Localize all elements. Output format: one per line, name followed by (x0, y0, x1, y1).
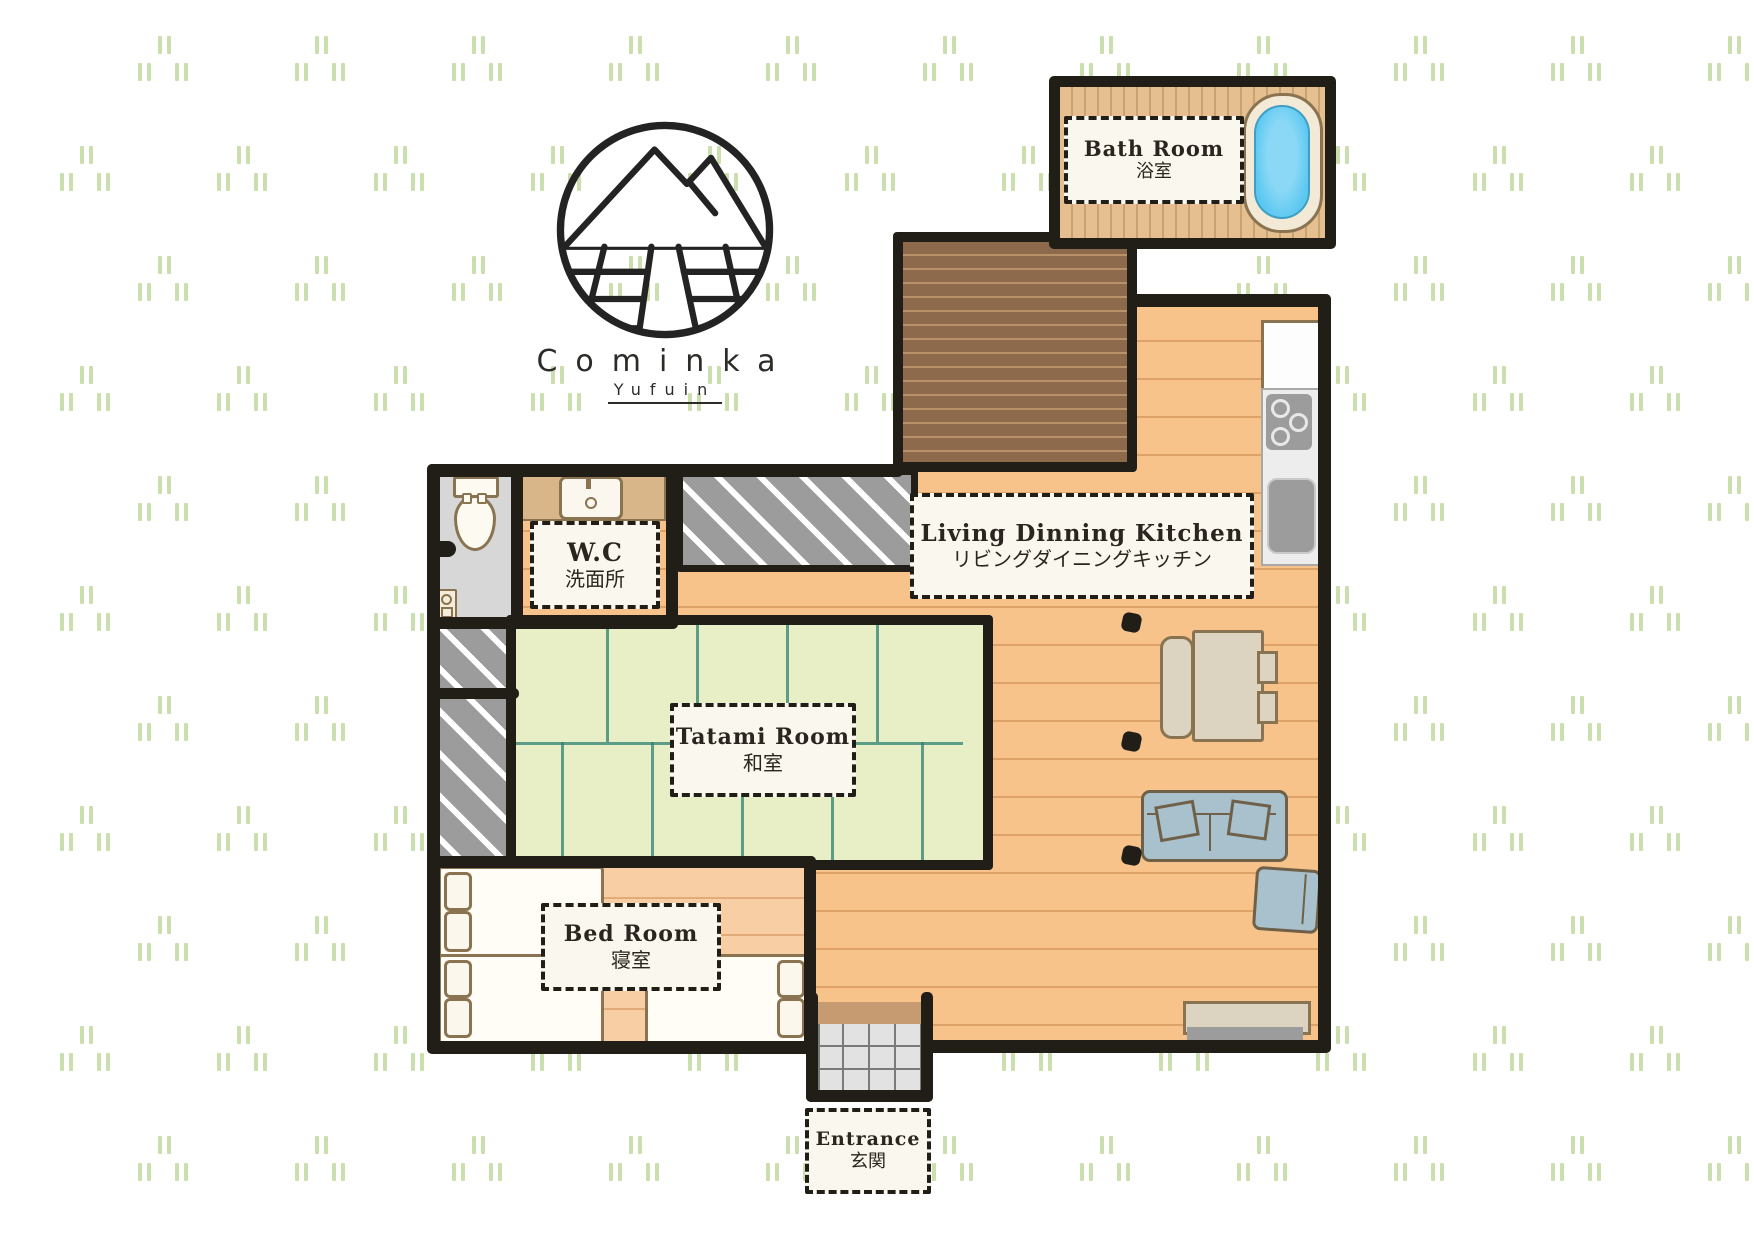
grass-tuft (295, 256, 351, 302)
grass-mark (332, 723, 346, 741)
tatami-mat-line (561, 742, 564, 860)
grass-mark (217, 613, 231, 631)
grass-mark (1650, 586, 1664, 604)
grass-mark (1510, 1053, 1524, 1071)
grass-tuft (766, 36, 822, 82)
grass-mark (943, 36, 957, 54)
sofa-cushion (1227, 799, 1272, 840)
grass-tuft (609, 1136, 665, 1182)
grass-mark (786, 256, 800, 274)
wall-wc-bottom (427, 617, 678, 629)
wc-label-ja: 洗面所 (565, 569, 625, 590)
grass-tuft (138, 256, 194, 302)
grass-tuft (217, 366, 273, 412)
grass-tuft (1473, 806, 1529, 852)
grass-tuft (1708, 1136, 1754, 1182)
grass-mark (158, 916, 172, 934)
grass-mark (217, 1053, 231, 1071)
grass-mark (295, 943, 309, 961)
kitchen-sink-icon (1267, 478, 1316, 554)
grass-mark (1745, 63, 1754, 81)
grass-mark (960, 1163, 974, 1181)
closet-divider-wall (429, 688, 519, 699)
grass-mark (332, 503, 346, 521)
grass-mark (1353, 173, 1367, 191)
toilet-icon (451, 476, 497, 550)
grass-mark (1588, 943, 1602, 961)
grass-mark (60, 173, 74, 191)
pillow-icon (777, 998, 805, 1038)
grass-mark (865, 146, 879, 164)
grass-mark (1353, 613, 1367, 631)
grass-mark (175, 283, 189, 301)
grass-mark (1002, 173, 1016, 191)
grass-mark (237, 146, 251, 164)
grass-mark (1510, 393, 1524, 411)
ldk-label: Living Dinning Kitchen リビングダイニングキッチン (910, 493, 1254, 599)
grass-mark (1667, 1053, 1681, 1071)
grass-mark (1394, 503, 1408, 521)
grass-mark (1728, 476, 1742, 494)
grass-mark (1100, 36, 1114, 54)
grass-mark (1100, 1136, 1114, 1154)
grass-mark (1510, 613, 1524, 631)
grass-tuft (1708, 256, 1754, 302)
grass-mark (1745, 723, 1754, 741)
grass-mark (1257, 36, 1271, 54)
grass-tuft (1630, 586, 1686, 632)
grass-tuft (217, 586, 273, 632)
grass-mark (865, 366, 879, 384)
burner-icon (1271, 427, 1290, 446)
entrance-step (818, 1002, 921, 1024)
grass-mark (1316, 1053, 1330, 1071)
grass-mark (1414, 696, 1428, 714)
grass-tuft (1551, 36, 1607, 82)
grass-tuft (60, 806, 116, 852)
bathroom-label-en: Bath Room (1084, 138, 1224, 160)
grass-mark (1353, 393, 1367, 411)
grass-mark (254, 173, 268, 191)
grass-mark (1473, 833, 1487, 851)
sink-icon (559, 476, 623, 520)
bathroom-label: Bath Room 浴室 (1064, 116, 1244, 204)
grass-tuft (1630, 146, 1686, 192)
toilet-door-stub (433, 541, 456, 557)
grass-tuft (295, 916, 351, 962)
wall-bottom-right (921, 1040, 1331, 1053)
grass-mark (138, 63, 152, 81)
grass-mark (138, 503, 152, 521)
grass-mark (472, 256, 486, 274)
grass-mark (1708, 503, 1722, 521)
grass-mark (1117, 1163, 1131, 1181)
grass-tuft (374, 366, 430, 412)
grass-mark (472, 36, 486, 54)
grass-mark (1022, 146, 1036, 164)
dining-table (1192, 630, 1264, 742)
grass-mark (489, 63, 503, 81)
wall-top-right (1127, 294, 1331, 307)
grass-mark (394, 146, 408, 164)
grass-tuft (1394, 476, 1450, 522)
bedroom-label-ja: 寝室 (611, 950, 651, 971)
entrance-tiles (818, 1024, 921, 1090)
grass-tuft (452, 1136, 508, 1182)
logo-subtitle: Yufuin (520, 380, 810, 399)
grass-tuft (923, 1136, 979, 1182)
wall-vestibule-right (921, 992, 933, 1102)
grass-mark (1630, 173, 1644, 191)
grass-mark (1551, 63, 1565, 81)
grass-tuft (452, 36, 508, 82)
grass-mark (295, 503, 309, 521)
grass-mark (158, 476, 172, 494)
grass-mark (1473, 173, 1487, 191)
grass-mark (217, 833, 231, 851)
grass-mark (1510, 833, 1524, 851)
grass-mark (845, 173, 859, 191)
grass-mark (217, 173, 231, 191)
grass-mark (374, 1053, 388, 1071)
grass-mark (80, 146, 94, 164)
logo-name: Cominka (536, 344, 793, 379)
grass-mark (766, 63, 780, 81)
grass-mark (411, 833, 425, 851)
grass-mark (1650, 366, 1664, 384)
grass-mark (609, 1163, 623, 1181)
entrance-label-ja: 玄関 (850, 1153, 886, 1172)
grass-mark (175, 723, 189, 741)
pillow-icon (777, 960, 805, 998)
grass-tuft (1237, 1136, 1293, 1182)
grass-mark (1551, 723, 1565, 741)
grass-tuft (1630, 806, 1686, 852)
grass-mark (646, 1163, 660, 1181)
grass-mark (1571, 696, 1585, 714)
grass-mark (1414, 256, 1428, 274)
grass-mark (786, 36, 800, 54)
grass-tuft (1473, 586, 1529, 632)
grass-mark (1414, 36, 1428, 54)
grass-mark (1630, 833, 1644, 851)
grass-mark (1588, 63, 1602, 81)
grass-tuft (1551, 916, 1607, 962)
grass-tuft (138, 1136, 194, 1182)
grass-mark (332, 943, 346, 961)
grass-mark (332, 1163, 346, 1181)
grass-mark (1728, 256, 1742, 274)
grass-mark (1039, 1053, 1053, 1071)
grass-mark (80, 806, 94, 824)
tv-icon (1187, 1027, 1303, 1040)
grass-mark (1493, 586, 1507, 604)
grass-mark (80, 1026, 94, 1044)
grass-tuft (374, 1026, 430, 1072)
tatami-label: Tatami Room 和室 (670, 703, 856, 797)
grass-mark (1002, 1053, 1016, 1071)
grass-mark (254, 393, 268, 411)
grass-mark (1431, 283, 1445, 301)
grass-mark (394, 366, 408, 384)
grass-mark (452, 63, 466, 81)
grass-mark (1394, 63, 1408, 81)
grass-mark (960, 63, 974, 81)
grass-mark (158, 256, 172, 274)
grass-mark (1571, 256, 1585, 274)
grass-tuft (374, 806, 430, 852)
grass-mark (646, 63, 660, 81)
grass-mark (1394, 1163, 1408, 1181)
grass-mark (97, 173, 111, 191)
grass-tuft (374, 146, 430, 192)
grass-tuft (60, 586, 116, 632)
grass-tuft (1473, 146, 1529, 192)
wood-deck (893, 232, 1137, 472)
grass-mark (1431, 943, 1445, 961)
grass-mark (1667, 393, 1681, 411)
grass-mark (1394, 943, 1408, 961)
grass-mark (1414, 1136, 1428, 1154)
toilet-bowl (454, 495, 496, 551)
grass-mark (1745, 283, 1754, 301)
grass-mark (1571, 1136, 1585, 1154)
hatched-zone-top (676, 468, 918, 572)
grass-mark (1745, 503, 1754, 521)
pillow-icon (444, 998, 472, 1038)
grass-mark (374, 173, 388, 191)
grass-mark (175, 63, 189, 81)
dining-chair (1257, 691, 1278, 724)
grass-mark (175, 943, 189, 961)
grass-mark (175, 1163, 189, 1181)
grass-mark (394, 1026, 408, 1044)
sofa-seat-divider (1209, 813, 1211, 851)
grass-mark (1274, 1163, 1288, 1181)
grass-tuft (1394, 256, 1450, 302)
grass-mark (629, 36, 643, 54)
grass-mark (1510, 173, 1524, 191)
grass-mark (1493, 366, 1507, 384)
grass-mark (217, 393, 231, 411)
grass-mark (60, 393, 74, 411)
grass-tuft (1630, 1026, 1686, 1072)
wall-wc-right (666, 470, 678, 629)
grass-mark (138, 723, 152, 741)
grass-tuft (1630, 366, 1686, 412)
grass-mark (1336, 586, 1350, 604)
floor-plan-canvas: Cominka Yufuin Bath Room 浴室 W.C 洗面所 (0, 0, 1754, 1241)
grass-mark (158, 1136, 172, 1154)
grass-mark (943, 1136, 957, 1154)
grass-mark (1473, 1053, 1487, 1071)
grass-mark (237, 1026, 251, 1044)
refrigerator-icon (1261, 320, 1324, 392)
logo-subtitle-text: Yufuin (608, 380, 722, 404)
grass-mark (1745, 943, 1754, 961)
grass-tuft (1708, 36, 1754, 82)
grass-mark (1196, 1053, 1210, 1071)
grass-mark (1708, 63, 1722, 81)
grass-mark (1257, 1136, 1271, 1154)
grass-tuft (1394, 696, 1450, 742)
grass-tuft (1551, 476, 1607, 522)
grass-tuft (374, 586, 430, 632)
grass-mark (923, 63, 937, 81)
grass-mark (1336, 366, 1350, 384)
grass-mark (315, 1136, 329, 1154)
grass-mark (374, 833, 388, 851)
dining-bench (1160, 636, 1194, 739)
burner-icon (1271, 399, 1290, 418)
grass-mark (1650, 1026, 1664, 1044)
grass-mark (237, 366, 251, 384)
grass-tuft (1394, 36, 1450, 82)
grass-tuft (1708, 916, 1754, 962)
grass-mark (97, 1053, 111, 1071)
grass-mark (489, 1163, 503, 1181)
sink-faucet (586, 477, 591, 489)
grass-mark (1708, 283, 1722, 301)
burner-icon (1289, 413, 1308, 432)
grass-mark (332, 63, 346, 81)
grass-mark (1431, 503, 1445, 521)
grass-mark (766, 1163, 780, 1181)
grass-mark (295, 1163, 309, 1181)
grass-tuft (1394, 916, 1450, 962)
grass-tuft (1551, 696, 1607, 742)
grass-mark (629, 1136, 643, 1154)
grass-mark (254, 833, 268, 851)
grass-mark (411, 393, 425, 411)
grass-mark (97, 393, 111, 411)
grass-mark (452, 1163, 466, 1181)
grass-mark (1336, 1026, 1350, 1044)
grass-mark (1431, 63, 1445, 81)
grass-tuft (60, 146, 116, 192)
grass-tuft (217, 146, 273, 192)
grass-mark (609, 63, 623, 81)
grass-mark (1667, 613, 1681, 631)
grass-mark (254, 1053, 268, 1071)
grass-tuft (295, 476, 351, 522)
grass-mark (138, 943, 152, 961)
grass-mark (158, 696, 172, 714)
grass-mark (60, 613, 74, 631)
grass-mark (374, 393, 388, 411)
grass-mark (1630, 393, 1644, 411)
grass-mark (80, 586, 94, 604)
entrance-vestibule (818, 992, 921, 1090)
grass-mark (237, 806, 251, 824)
grass-mark (1159, 1053, 1173, 1071)
grass-mark (803, 63, 817, 81)
grass-mark (1431, 1163, 1445, 1181)
grass-mark (1493, 1026, 1507, 1044)
grass-mark (1394, 283, 1408, 301)
bedroom-label-en: Bed Room (564, 923, 699, 946)
grass-mark (97, 613, 111, 631)
grass-tuft (138, 36, 194, 82)
grass-mark (1588, 283, 1602, 301)
sofa-icon (1141, 790, 1288, 862)
grass-tuft (217, 1026, 273, 1072)
grass-mark (531, 173, 545, 191)
grass-mark (1336, 146, 1350, 164)
wall-vestibule-left (806, 992, 818, 1102)
bathtub-icon (1243, 93, 1323, 233)
wall-bottom-left (427, 1041, 818, 1054)
tatami-mat-line (651, 742, 654, 860)
grass-mark (452, 283, 466, 301)
grass-mark (332, 283, 346, 301)
grass-mark (1708, 723, 1722, 741)
grass-mark (138, 1163, 152, 1181)
grass-tuft (1473, 366, 1529, 412)
grass-tuft (1473, 1026, 1529, 1072)
grass-mark (1650, 146, 1664, 164)
grass-mark (1708, 1163, 1722, 1181)
wall-right (1318, 294, 1331, 1053)
grass-tuft (1708, 476, 1754, 522)
grass-mark (688, 1053, 702, 1071)
tatami-label-en: Tatami Room (676, 726, 850, 749)
grass-tuft (845, 146, 901, 192)
tatami-mat-line (921, 742, 924, 860)
grass-mark (60, 1053, 74, 1071)
grass-mark (882, 173, 896, 191)
grass-mark (1630, 613, 1644, 631)
grass-tuft (1551, 1136, 1607, 1182)
stove-icon (1266, 394, 1312, 450)
grass-mark (1588, 503, 1602, 521)
toilet-hinge-left (462, 493, 472, 504)
grass-mark (60, 833, 74, 851)
holder-dial (441, 594, 452, 605)
grass-mark (1473, 613, 1487, 631)
bedroom-label: Bed Room 寝室 (541, 903, 721, 991)
grass-mark (1728, 696, 1742, 714)
grass-mark (295, 283, 309, 301)
wall-top-left (427, 464, 903, 477)
grass-mark (254, 613, 268, 631)
grass-mark (315, 476, 329, 494)
grass-mark (374, 613, 388, 631)
grass-mark (1551, 1163, 1565, 1181)
grass-mark (1571, 36, 1585, 54)
cominka-logo-icon (550, 115, 780, 345)
grass-mark (1708, 943, 1722, 961)
sofa-cushion (1154, 800, 1200, 842)
grass-mark (1237, 1163, 1251, 1181)
grass-mark (315, 696, 329, 714)
grass-mark (1551, 283, 1565, 301)
grass-mark (1667, 173, 1681, 191)
logo-wordmark: Cominka (520, 344, 810, 379)
grass-mark (1493, 146, 1507, 164)
grass-mark (1414, 476, 1428, 494)
grass-mark (1551, 503, 1565, 521)
tatami-mat-line (606, 625, 609, 742)
grass-mark (1551, 943, 1565, 961)
grass-mark (1571, 916, 1585, 934)
grass-mark (175, 503, 189, 521)
grass-mark (1728, 916, 1742, 934)
armchair-icon (1252, 866, 1322, 934)
tatami-label-ja: 和室 (743, 753, 783, 774)
grass-mark (845, 393, 859, 411)
armchair-back-line (1301, 874, 1306, 924)
